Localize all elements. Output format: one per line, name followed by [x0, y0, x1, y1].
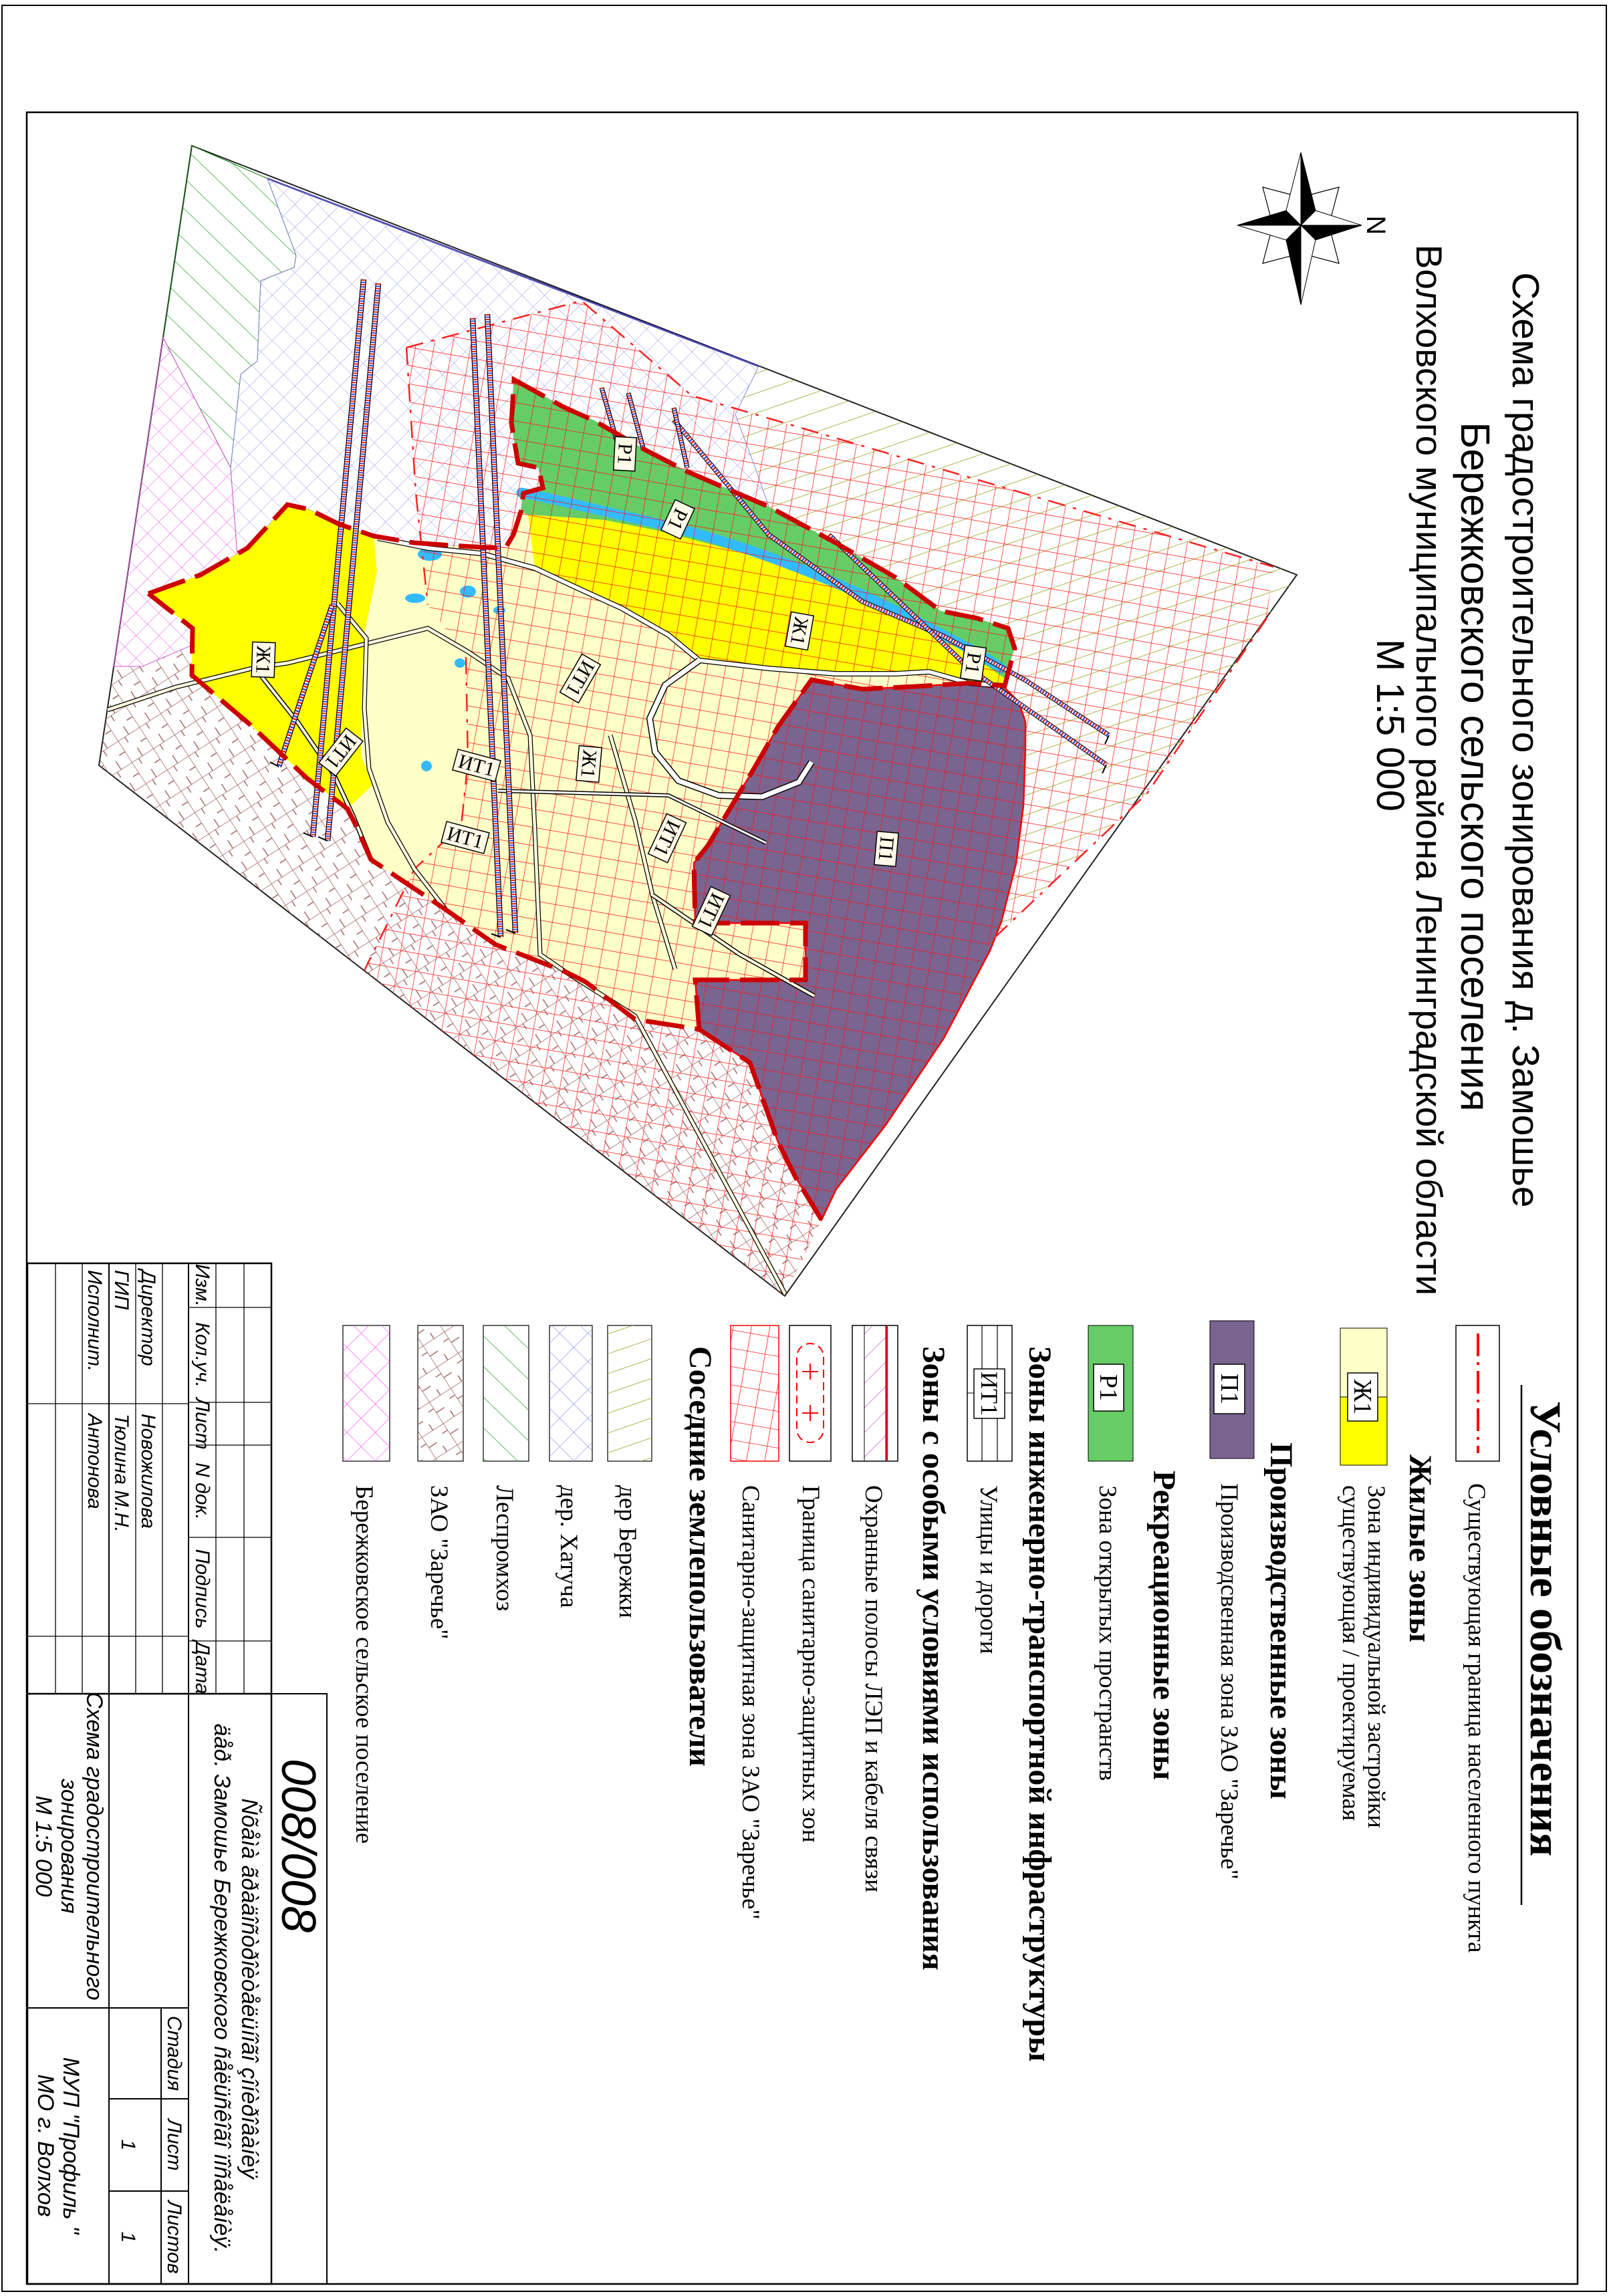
svg-text:существующая / проектируемая: существующая / проектируемая	[1337, 1485, 1364, 1821]
svg-text:Антонова: Антонова	[84, 1412, 106, 1509]
svg-text:Ж1: Ж1	[251, 645, 274, 674]
svg-text:Ñõåìà ãðàäîñòðîèòåëüíîãî çîí: Ñõåìà ãðàäîñòðîèòåëüíîãî çîíèðîâàíèÿ	[237, 1798, 262, 2180]
svg-text:Условные обозначения: Условные обозначения	[1521, 1401, 1570, 1856]
svg-text:дер. Хатуча: дер. Хатуча	[555, 1485, 582, 1608]
svg-text:Зона открытых пространств: Зона открытых пространств	[1094, 1485, 1121, 1781]
svg-text:ГИП: ГИП	[110, 1270, 132, 1310]
svg-text:Существующая граница населенн: Существующая граница населенного пункта	[1463, 1483, 1490, 1953]
svg-text:П1: П1	[1215, 1374, 1243, 1404]
svg-text:Зоны инженерно-транспортной ин: Зоны инженерно-транспортной инфраструкту…	[1022, 1346, 1058, 2062]
svg-text:Зона индивидуальной застройки: Зона индивидуальной застройки	[1362, 1485, 1390, 1828]
svg-text:Подпись: Подпись	[191, 1549, 213, 1629]
svg-text:Р1: Р1	[1094, 1374, 1122, 1401]
svg-text:Р1: Р1	[613, 442, 636, 465]
svg-text:Схема градостроительного зонир: Схема градостроительного зонирования д. …	[1504, 272, 1547, 1207]
svg-text:N док.: N док.	[191, 1462, 213, 1520]
svg-text:Тюлина М.Н.: Тюлина М.Н.	[110, 1414, 132, 1533]
svg-text:Бережковское сельское поселе: Бережковское сельское поселение	[350, 1485, 378, 1843]
svg-text:Директор: Директор	[137, 1268, 159, 1366]
svg-text:П1: П1	[874, 836, 898, 862]
svg-text:Улицы и дороги: Улицы и дороги	[975, 1485, 1002, 1654]
svg-text:М 1:5 000: М 1:5 000	[31, 1795, 56, 1896]
svg-text:Производсвенная зона ЗАО "Зар: Производсвенная зона ЗАО "Заречье"	[1215, 1483, 1243, 1880]
svg-text:зонирования: зонирования	[56, 1778, 82, 1913]
svg-text:Лист: Лист	[163, 2118, 185, 2170]
svg-text:Ж1: Ж1	[576, 749, 601, 779]
svg-text:Бережковского сельского посел: Бережковского сельского поселения	[1453, 422, 1498, 1112]
svg-text:Санитарно-защитная зона ЗАО "З: Санитарно-защитная зона ЗАО "Заречье"	[737, 1485, 764, 1920]
svg-text:МУП "Профиль ": МУП "Профиль "	[58, 2057, 84, 2235]
svg-text:1: 1	[117, 2140, 139, 2151]
svg-text:N: N	[1361, 216, 1390, 235]
svg-text:Стадия: Стадия	[163, 2016, 185, 2091]
svg-text:Граница санитарно-защитных зон: Граница санитарно-защитных зон	[797, 1485, 824, 1843]
svg-text:М 1:5 000: М 1:5 000	[1368, 639, 1412, 811]
svg-text:дер Бережки: дер Бережки	[614, 1485, 641, 1618]
svg-text:Дата: Дата	[191, 1639, 213, 1694]
svg-text:äåð. Замошье Бережковского: äåð. Замошье Бережковского ñåëüñêîãî ïîñ…	[209, 1724, 235, 2254]
svg-text:МО г. Волхов: МО г. Волхов	[33, 2074, 58, 2216]
svg-text:Жилые зоны: Жилые зоны	[1402, 1454, 1438, 1642]
svg-text:Листов: Листов	[163, 2199, 185, 2273]
svg-text:ИТ1: ИТ1	[976, 1372, 1003, 1416]
svg-text:Ж1: Ж1	[1348, 1379, 1376, 1414]
svg-text:Соседние землепользователи: Соседние землепользователи	[683, 1346, 718, 1767]
svg-text:Р1: Р1	[961, 651, 985, 675]
svg-text:Производственные зоны: Производственные зоны	[1263, 1442, 1299, 1799]
svg-text:Охранные полосы ЛЭП и кабеля с: Охранные полосы ЛЭП и кабеля связи	[860, 1485, 887, 1892]
svg-text:Леспромхоз: Леспромхоз	[491, 1485, 518, 1611]
svg-text:Волховского муниципального рай: Волховского муниципального района Ленинг…	[1408, 245, 1450, 1295]
svg-text:Кол.уч.: Кол.уч.	[191, 1322, 213, 1388]
svg-text:Исполнит.: Исполнит.	[84, 1270, 106, 1372]
svg-text:Схема градостроительного: Схема градостроительного	[82, 1692, 107, 2000]
svg-text:Лист: Лист	[191, 1396, 213, 1449]
svg-text:1: 1	[117, 2232, 139, 2243]
svg-text:008/008: 008/008	[271, 1759, 325, 1932]
svg-text:Рекреационные зоны: Рекреационные зоны	[1146, 1471, 1182, 1780]
svg-text:ЗАО "Заречье": ЗАО "Заречье"	[425, 1485, 453, 1639]
svg-text:Изм.: Изм.	[191, 1264, 213, 1307]
svg-text:Зоны с особыми условиями испо: Зоны с особыми условиями использования	[916, 1346, 951, 1970]
svg-text:Новожилова: Новожилова	[137, 1414, 159, 1529]
